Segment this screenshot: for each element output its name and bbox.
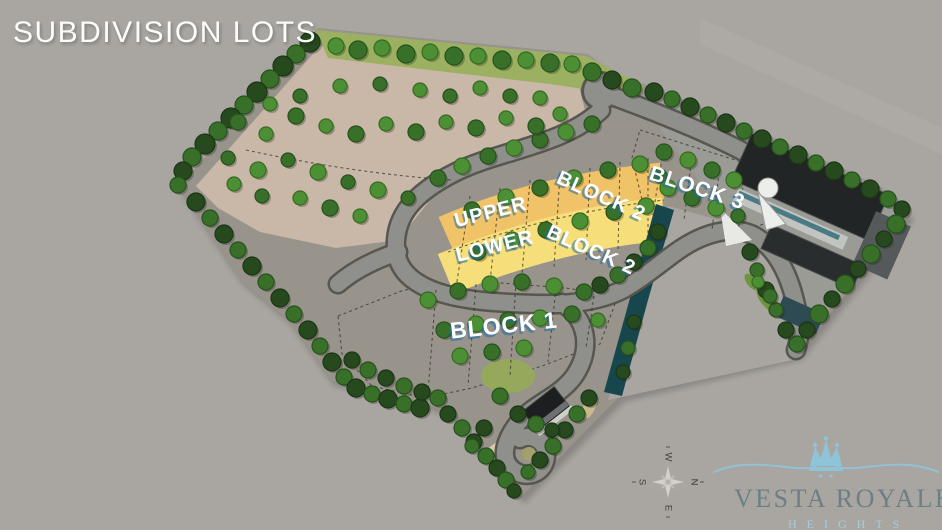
- tree: [299, 321, 317, 339]
- tree: [328, 38, 344, 54]
- tree: [516, 340, 532, 356]
- tree: [408, 124, 424, 140]
- tree: [616, 365, 630, 379]
- tree: [825, 162, 843, 180]
- tree: [370, 182, 386, 198]
- tree: [778, 322, 794, 338]
- tree: [545, 438, 561, 454]
- tree: [470, 48, 486, 64]
- brand-subtitle: HEIGHTS: [788, 517, 942, 528]
- tree: [752, 276, 764, 288]
- page-title: SUBDIVISION LOTS: [13, 16, 317, 50]
- tree: [650, 224, 666, 240]
- tree: [348, 126, 364, 142]
- tree: [250, 162, 266, 178]
- tree: [621, 341, 635, 355]
- tree: [341, 175, 355, 189]
- tree: [480, 148, 496, 164]
- tree: [591, 313, 605, 327]
- tree: [202, 210, 218, 226]
- tree: [824, 291, 840, 307]
- tree: [378, 370, 394, 386]
- tree: [645, 83, 663, 101]
- tree: [411, 399, 429, 417]
- tree: [293, 191, 307, 205]
- tree: [503, 89, 517, 103]
- tree: [243, 257, 261, 275]
- tree: [465, 439, 479, 453]
- compass-east: E: [662, 505, 673, 511]
- tree: [312, 338, 328, 354]
- tree: [569, 406, 585, 422]
- tree: [215, 225, 233, 243]
- masterplan-canvas: UPPER UPPER LOWER LOWER BLOCK 2 BLOCK 2 …: [0, 0, 942, 530]
- tree: [263, 97, 277, 111]
- tree: [581, 390, 597, 406]
- tree: [704, 162, 720, 178]
- tree: [862, 245, 880, 263]
- tree: [445, 47, 463, 65]
- tree: [564, 56, 580, 72]
- tree: [810, 305, 828, 323]
- tree: [553, 107, 567, 121]
- tree: [861, 180, 879, 198]
- compass-center: [666, 480, 671, 485]
- tree: [564, 306, 580, 322]
- tree: [680, 152, 696, 168]
- tree: [627, 315, 641, 329]
- tree: [510, 406, 526, 422]
- tree: [656, 144, 672, 160]
- tree: [887, 215, 905, 233]
- tree: [221, 151, 235, 165]
- tree: [844, 172, 860, 188]
- tree: [584, 116, 600, 132]
- tree: [600, 162, 616, 178]
- tree: [640, 240, 656, 256]
- tree: [452, 348, 468, 364]
- tree: [430, 170, 446, 186]
- crown-icon: [708, 434, 942, 480]
- tree: [476, 420, 492, 436]
- tree: [484, 344, 500, 360]
- tree: [681, 98, 699, 116]
- tree: [532, 452, 548, 468]
- tree: [623, 79, 641, 97]
- compass-west: W: [662, 453, 673, 462]
- tree: [880, 191, 896, 207]
- tree: [259, 127, 273, 141]
- tree: [379, 390, 397, 408]
- tree: [576, 284, 592, 300]
- brand-name: VESTA ROYALE: [734, 486, 942, 512]
- tree: [364, 386, 380, 402]
- tree: [482, 276, 498, 292]
- tree: [230, 242, 246, 258]
- tree: [271, 289, 289, 307]
- tree: [286, 306, 302, 322]
- tree: [422, 44, 438, 60]
- brand-logo: VESTA ROYALE HEIGHTS: [708, 434, 942, 528]
- tree: [518, 52, 534, 68]
- tree: [664, 91, 680, 107]
- tree: [700, 107, 716, 123]
- compass-south: S: [636, 479, 647, 485]
- open-space-patch: [481, 359, 535, 393]
- tree: [736, 123, 752, 139]
- tree: [333, 79, 347, 93]
- tree: [528, 416, 544, 432]
- tree: [763, 289, 777, 303]
- tree: [396, 378, 412, 394]
- tree: [281, 153, 295, 167]
- tree: [750, 263, 764, 277]
- tree: [532, 180, 548, 196]
- tree: [413, 83, 427, 97]
- tree: [187, 193, 205, 211]
- tree: [288, 108, 304, 124]
- tree: [850, 261, 866, 277]
- tree: [323, 353, 341, 371]
- tree: [546, 278, 562, 294]
- tree: [353, 209, 367, 223]
- tree: [255, 189, 269, 203]
- tree: [414, 384, 430, 400]
- tree: [528, 118, 544, 134]
- tree: [439, 115, 453, 129]
- tree: [753, 130, 771, 148]
- tree: [493, 51, 511, 69]
- tree: [572, 213, 588, 229]
- tree: [170, 177, 186, 193]
- tree: [876, 231, 892, 247]
- tree: [373, 77, 387, 91]
- compass: W S N E: [632, 447, 704, 517]
- tree: [454, 420, 470, 436]
- tree: [450, 283, 466, 299]
- tree: [293, 89, 307, 103]
- tree: [396, 396, 412, 412]
- tree: [533, 91, 547, 105]
- tree: [772, 139, 788, 155]
- tree: [592, 277, 608, 293]
- tree: [401, 191, 415, 205]
- compass-north: N: [688, 479, 699, 486]
- tree: [230, 114, 246, 130]
- tree: [227, 177, 241, 191]
- tree: [443, 89, 457, 103]
- tree: [468, 120, 484, 136]
- tree: [506, 140, 522, 156]
- tree: [521, 465, 535, 479]
- tree: [769, 303, 783, 317]
- tree: [440, 406, 456, 422]
- tree: [374, 40, 390, 56]
- tree: [347, 379, 365, 397]
- tree: [808, 155, 824, 171]
- tree: [717, 114, 735, 132]
- tree: [397, 45, 415, 63]
- tree: [430, 390, 446, 406]
- tree: [742, 244, 758, 260]
- tree: [632, 156, 648, 172]
- tree: [454, 158, 470, 174]
- tree: [799, 322, 815, 338]
- slide: { "title": "SUBDIVISION LOTS", "map": { …: [0, 0, 942, 530]
- crown-glyph: [809, 436, 843, 477]
- tree: [545, 423, 559, 437]
- tree: [349, 41, 367, 59]
- tree: [507, 484, 521, 498]
- tree: [558, 124, 574, 140]
- tree: [492, 388, 508, 404]
- tree: [603, 71, 621, 89]
- tree: [379, 117, 393, 131]
- tree: [499, 111, 513, 125]
- tree: [473, 81, 487, 95]
- tree: [344, 352, 360, 368]
- tree: [310, 164, 326, 180]
- tree: [322, 200, 338, 216]
- tree: [514, 274, 530, 290]
- tree: [583, 63, 601, 81]
- tree: [836, 275, 854, 293]
- tree: [789, 146, 807, 164]
- tree: [420, 292, 436, 308]
- tree: [541, 54, 559, 72]
- tree: [258, 274, 274, 290]
- tree: [360, 362, 376, 378]
- tree: [319, 119, 333, 133]
